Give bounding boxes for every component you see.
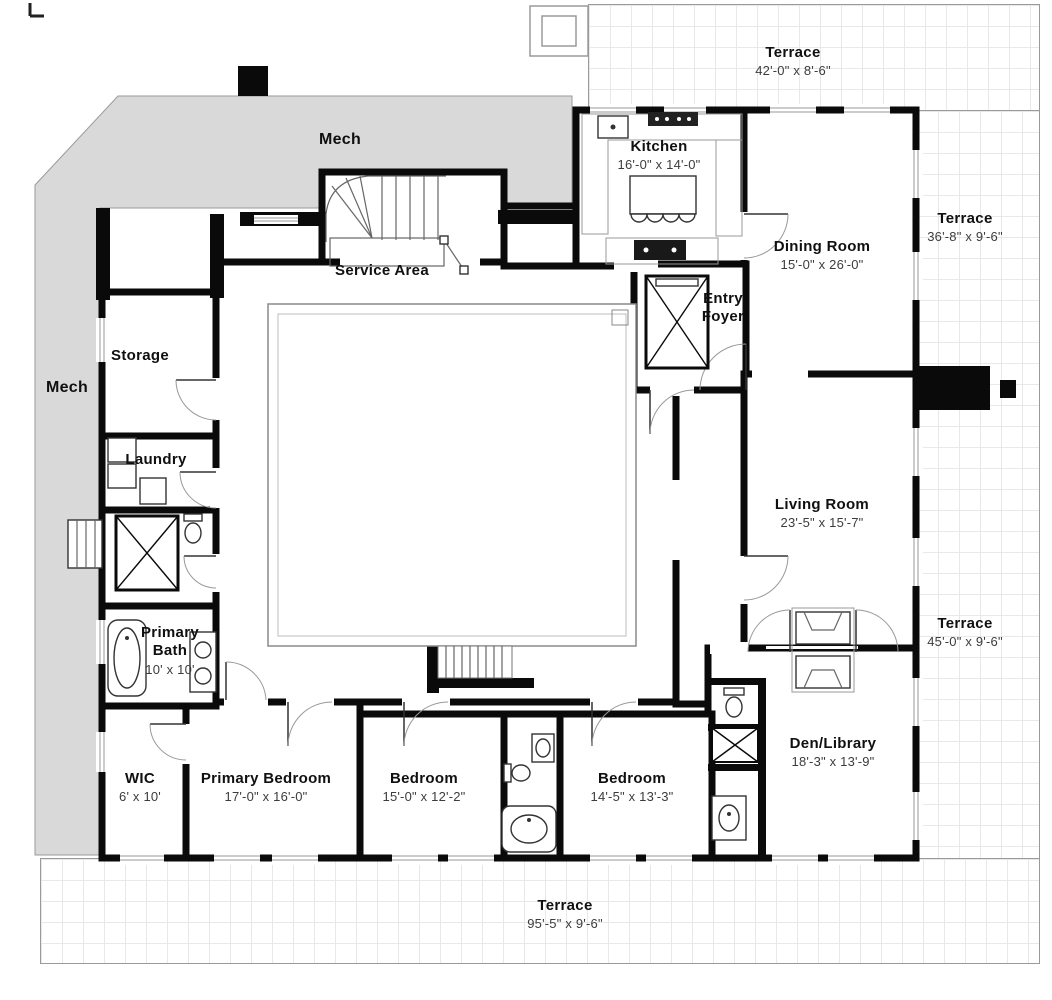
central-gallery-outline xyxy=(268,304,636,646)
corner-mark-icon xyxy=(30,3,44,16)
floorplan-svg xyxy=(0,0,1052,1000)
floor-plan: Terrace 42'-0" x 8'-6" Terrace 36'-8" x … xyxy=(0,0,1052,1000)
entry-elevator-icon xyxy=(646,276,708,368)
lobby-toilet-icon xyxy=(184,514,202,543)
den-closet-icon xyxy=(712,728,758,762)
gallery-stairs-icon xyxy=(438,646,512,678)
skylight-box xyxy=(530,6,588,56)
